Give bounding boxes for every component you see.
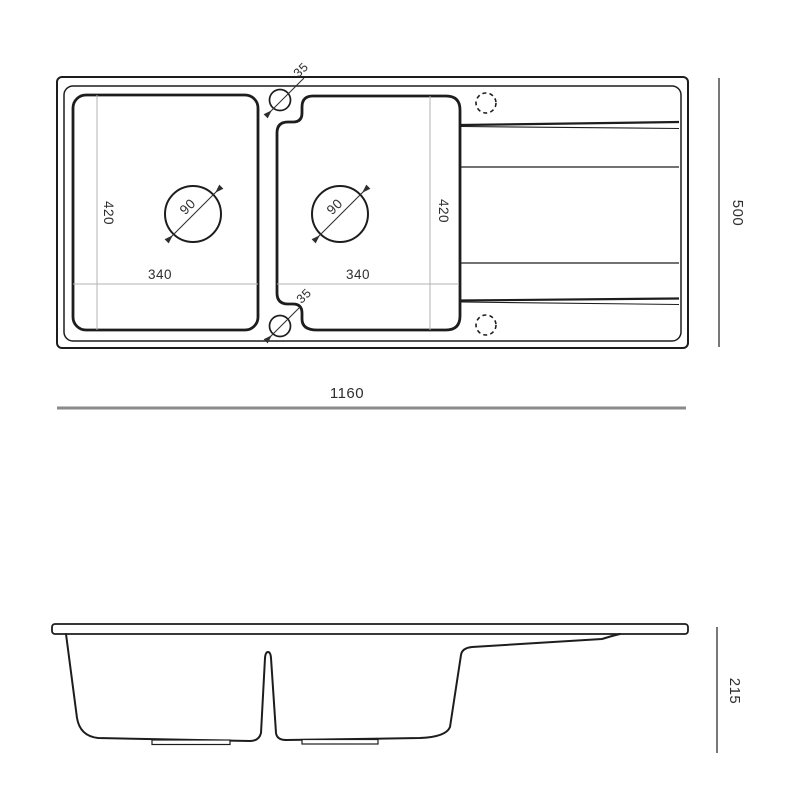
side-rim-bar — [52, 624, 688, 634]
sink-technical-drawing: 35 35 90 90 420 340 420 340 500 1160 — [0, 0, 800, 800]
overall-width-dim: 1160 — [330, 385, 364, 402]
side-profile — [66, 634, 620, 741]
tap-hole-top-circle — [270, 90, 291, 111]
left-bowl-depth-dim: 420 — [101, 201, 116, 225]
drawing-canvas: 35 35 90 90 420 340 420 340 500 1160 — [0, 0, 800, 800]
left-bowl-width-dim: 340 — [148, 267, 172, 282]
tap-hole-bottom-circle — [270, 316, 291, 337]
right-foot-pad — [302, 740, 378, 745]
dim-overall-height: 215 — [717, 627, 743, 753]
right-bowl-depth-dim: 420 — [436, 199, 451, 223]
top-view: 35 35 90 90 420 340 420 340 — [57, 60, 688, 348]
dim-overall-width: 1160 — [57, 385, 686, 408]
overall-depth-dim: 500 — [729, 200, 746, 227]
overall-height-dim: 215 — [726, 678, 743, 705]
right-bowl-width-dim: 340 — [346, 267, 370, 282]
side-view — [52, 624, 688, 745]
dim-overall-depth: 500 — [719, 78, 746, 347]
left-foot-pad — [152, 740, 230, 745]
